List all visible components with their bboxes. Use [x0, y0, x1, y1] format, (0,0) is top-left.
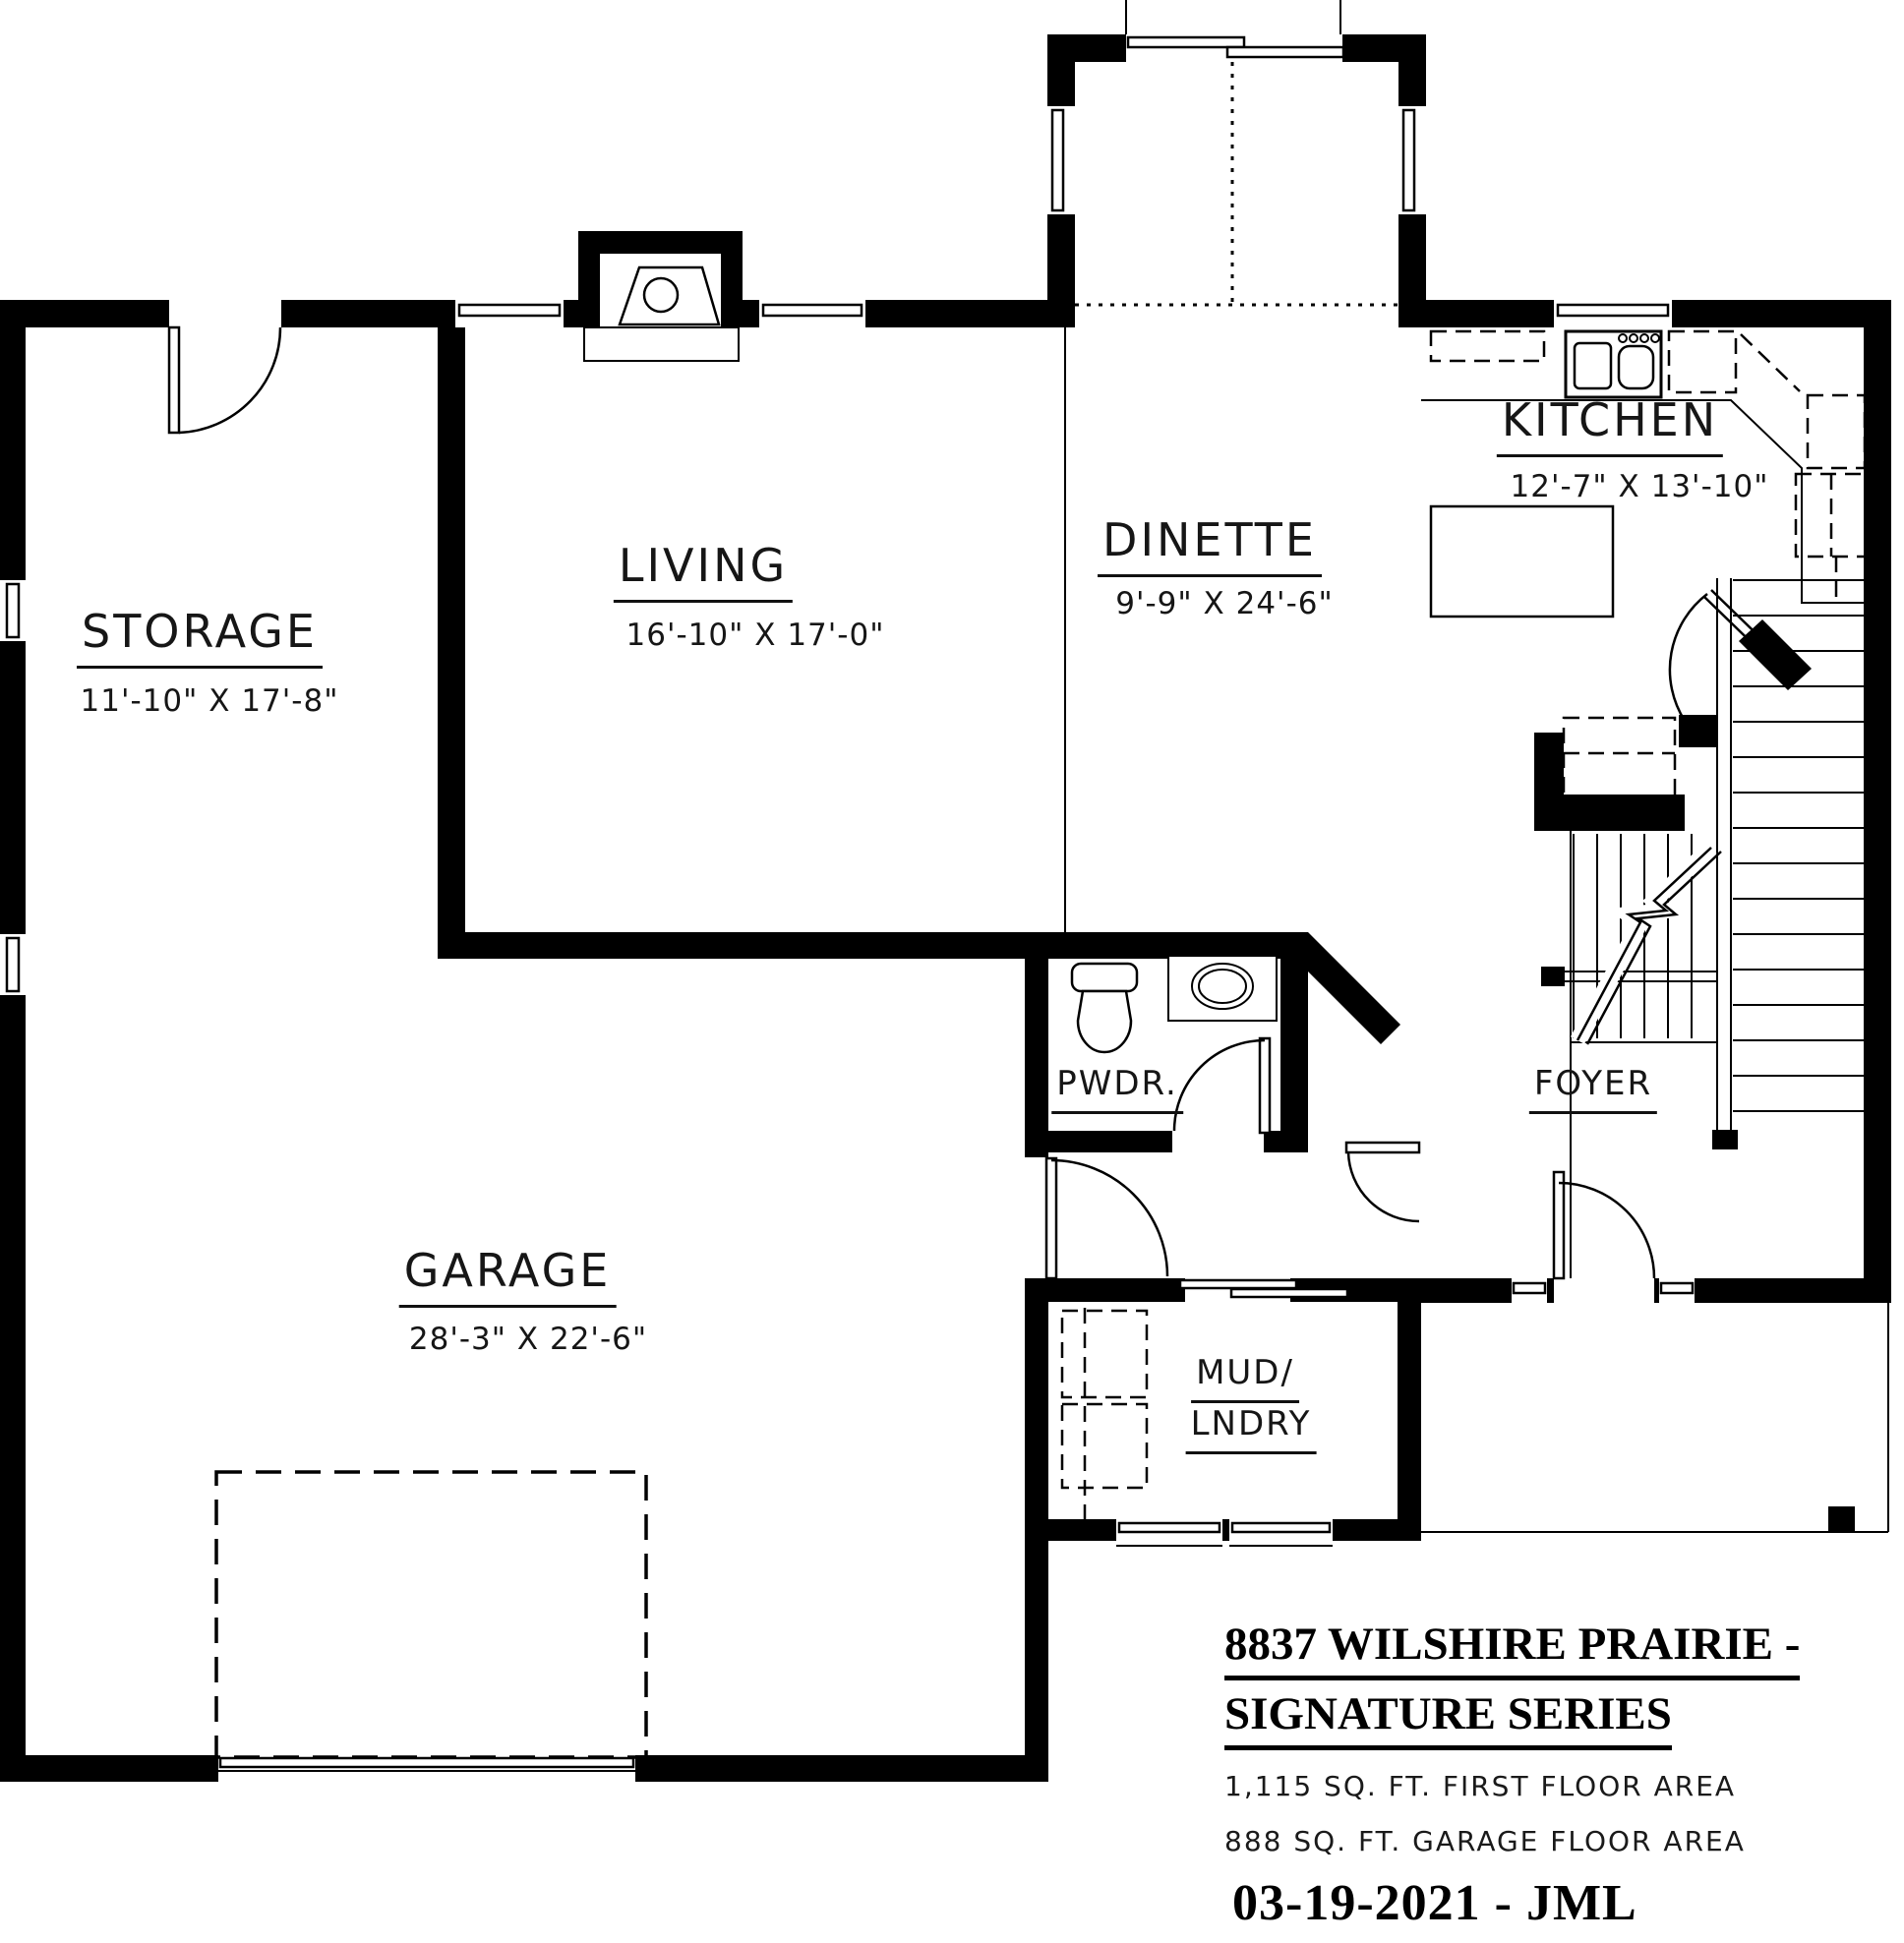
porch-post: [1828, 1506, 1855, 1533]
basement-door-arc: [1670, 594, 1707, 721]
wall-foyer-bottom: [1421, 1278, 1891, 1303]
dims-dinette: 9'-9" X 24'-6": [1115, 586, 1334, 621]
foyer-name: FOYER: [1529, 1064, 1657, 1114]
stair-newel-left: [1542, 968, 1564, 985]
closet-door-leaf: [1346, 1143, 1419, 1152]
toilet-bowl: [1078, 991, 1131, 1052]
garage-door-panel: [220, 1758, 633, 1767]
sidelight-left: [1514, 1283, 1545, 1293]
window-bay-right: [1403, 110, 1414, 210]
fireplace: [578, 231, 743, 361]
windows: [7, 37, 1693, 1767]
label-dinette: DINETTE: [1098, 513, 1322, 577]
front-door-arc: [1559, 1183, 1654, 1278]
label-foyer: FOYER: [1529, 1064, 1657, 1114]
reference-lines: [1065, 0, 1398, 932]
storage-door-leaf: [169, 327, 179, 433]
label-mud-line2: LNDRY: [1186, 1404, 1317, 1454]
bay-slider-panel-1: [1128, 37, 1244, 47]
dims-storage: 11'-10" X 17'-8": [81, 683, 339, 719]
mud-name-1: MUD/: [1191, 1353, 1299, 1403]
wall-left: [0, 300, 26, 1782]
garage-name: GARAGE: [399, 1244, 617, 1308]
window-mud-left: [1119, 1523, 1220, 1532]
powder-door-arc: [1174, 1040, 1265, 1131]
wall-mud-right: [1398, 1278, 1421, 1541]
storage-door-arc: [179, 327, 280, 433]
sink-basin-left: [1575, 343, 1611, 388]
wall-basement-angle: [1739, 619, 1812, 690]
wall-mud-bottom: [1025, 1519, 1421, 1541]
living-name: LIVING: [614, 539, 793, 603]
fireplace-hearth: [584, 327, 739, 361]
powder-name: PWDR.: [1051, 1064, 1183, 1114]
powder-fixtures: [1072, 956, 1277, 1052]
window-bay-left: [1052, 110, 1063, 210]
front-door-leaf: [1554, 1172, 1564, 1278]
title-garage-floor-area: 888 SQ. FT. GARAGE FLOOR AREA: [1224, 1825, 1721, 1857]
faucet-dot-4: [1651, 334, 1659, 342]
stair-newel-right: [1713, 1131, 1737, 1148]
sink-basin-right: [1619, 346, 1653, 388]
washer-box: [1062, 1311, 1147, 1397]
title-first-floor-area: 1,115 SQ. FT. FIRST FLOOR AREA: [1224, 1770, 1721, 1802]
walls: [0, 34, 1891, 1782]
garage-entry-door-leaf: [1046, 1158, 1056, 1278]
title-date-author: 03-19-2021 - JML: [1232, 1874, 1637, 1932]
mud-slider-panel-1: [1180, 1280, 1296, 1288]
upper-cabinet-3: [1808, 395, 1865, 468]
wall-living-bottom: [438, 932, 1308, 959]
stairs: [1542, 578, 1864, 1278]
wall-storage-living: [438, 300, 465, 959]
dims-kitchen: 12'-7" X 13'-10": [1511, 469, 1769, 504]
title-address-line1: 8837 WILSHIRE PRAIRIE -: [1224, 1618, 1800, 1680]
label-kitchen: KITCHEN: [1497, 393, 1723, 457]
label-mud-line1: MUD/: [1191, 1353, 1299, 1403]
kitchen-island: [1431, 506, 1613, 617]
window-kitchen-sink: [1558, 305, 1668, 316]
upper-cabinet-2: [1669, 331, 1736, 392]
label-living: LIVING: [614, 539, 793, 603]
window-garage-left: [7, 938, 19, 991]
closet-door-arc: [1348, 1152, 1419, 1221]
label-storage: STORAGE: [77, 605, 323, 669]
window-living-left: [459, 305, 560, 316]
label-powder: PWDR.: [1051, 1064, 1183, 1114]
wall-mud-top-left: [1025, 1278, 1185, 1302]
wall-stair-top: [1534, 795, 1685, 831]
toilet-tank: [1072, 964, 1137, 991]
mud-slider-panel-2: [1231, 1289, 1347, 1297]
faucet-dot-2: [1630, 334, 1637, 342]
kitchen-name: KITCHEN: [1497, 393, 1723, 457]
mud-name-2: LNDRY: [1186, 1404, 1317, 1454]
wall-openings: [0, 34, 1695, 1782]
stair-break-line-b: [1587, 852, 1721, 1044]
faucet-dot-3: [1640, 334, 1648, 342]
wall-right: [1864, 300, 1891, 1303]
floor-plan-page: STORAGE 11'-10" X 17'-8" LIVING 16'-10" …: [0, 0, 1904, 1943]
kitchen-sink: [1566, 331, 1661, 397]
upper-cabinet-corner: [1741, 334, 1800, 391]
laundry-appliances: [1062, 1308, 1147, 1519]
dims-living: 16'-10" X 17'-0": [626, 618, 885, 653]
vanity-sink-inner: [1199, 970, 1246, 1003]
wall-garage-right-upper: [1025, 932, 1048, 1157]
window-storage-left: [7, 584, 19, 637]
dryer-box: [1062, 1404, 1147, 1488]
dinette-name: DINETTE: [1098, 513, 1322, 577]
wall-powder-post: [1264, 1131, 1308, 1152]
upper-cabinet-1: [1431, 331, 1544, 361]
faucet-dot-1: [1619, 334, 1627, 342]
front-porch: [1421, 1303, 1888, 1532]
fireplace-flue: [644, 278, 678, 312]
bay-slider-panel-2: [1227, 47, 1343, 57]
powder-door-leaf: [1260, 1038, 1270, 1133]
sidelight-right: [1661, 1283, 1693, 1293]
window-mud-right: [1232, 1523, 1330, 1532]
dims-garage: 28'-3" X 22'-6": [409, 1322, 647, 1357]
label-garage: GARAGE: [399, 1244, 617, 1308]
storage-name: STORAGE: [77, 605, 323, 669]
title-address-line2: SIGNATURE SERIES: [1224, 1687, 1672, 1750]
garage-door-track: [216, 1472, 646, 1757]
garage-entry-door-arc: [1051, 1160, 1167, 1276]
window-living-right: [763, 305, 862, 316]
